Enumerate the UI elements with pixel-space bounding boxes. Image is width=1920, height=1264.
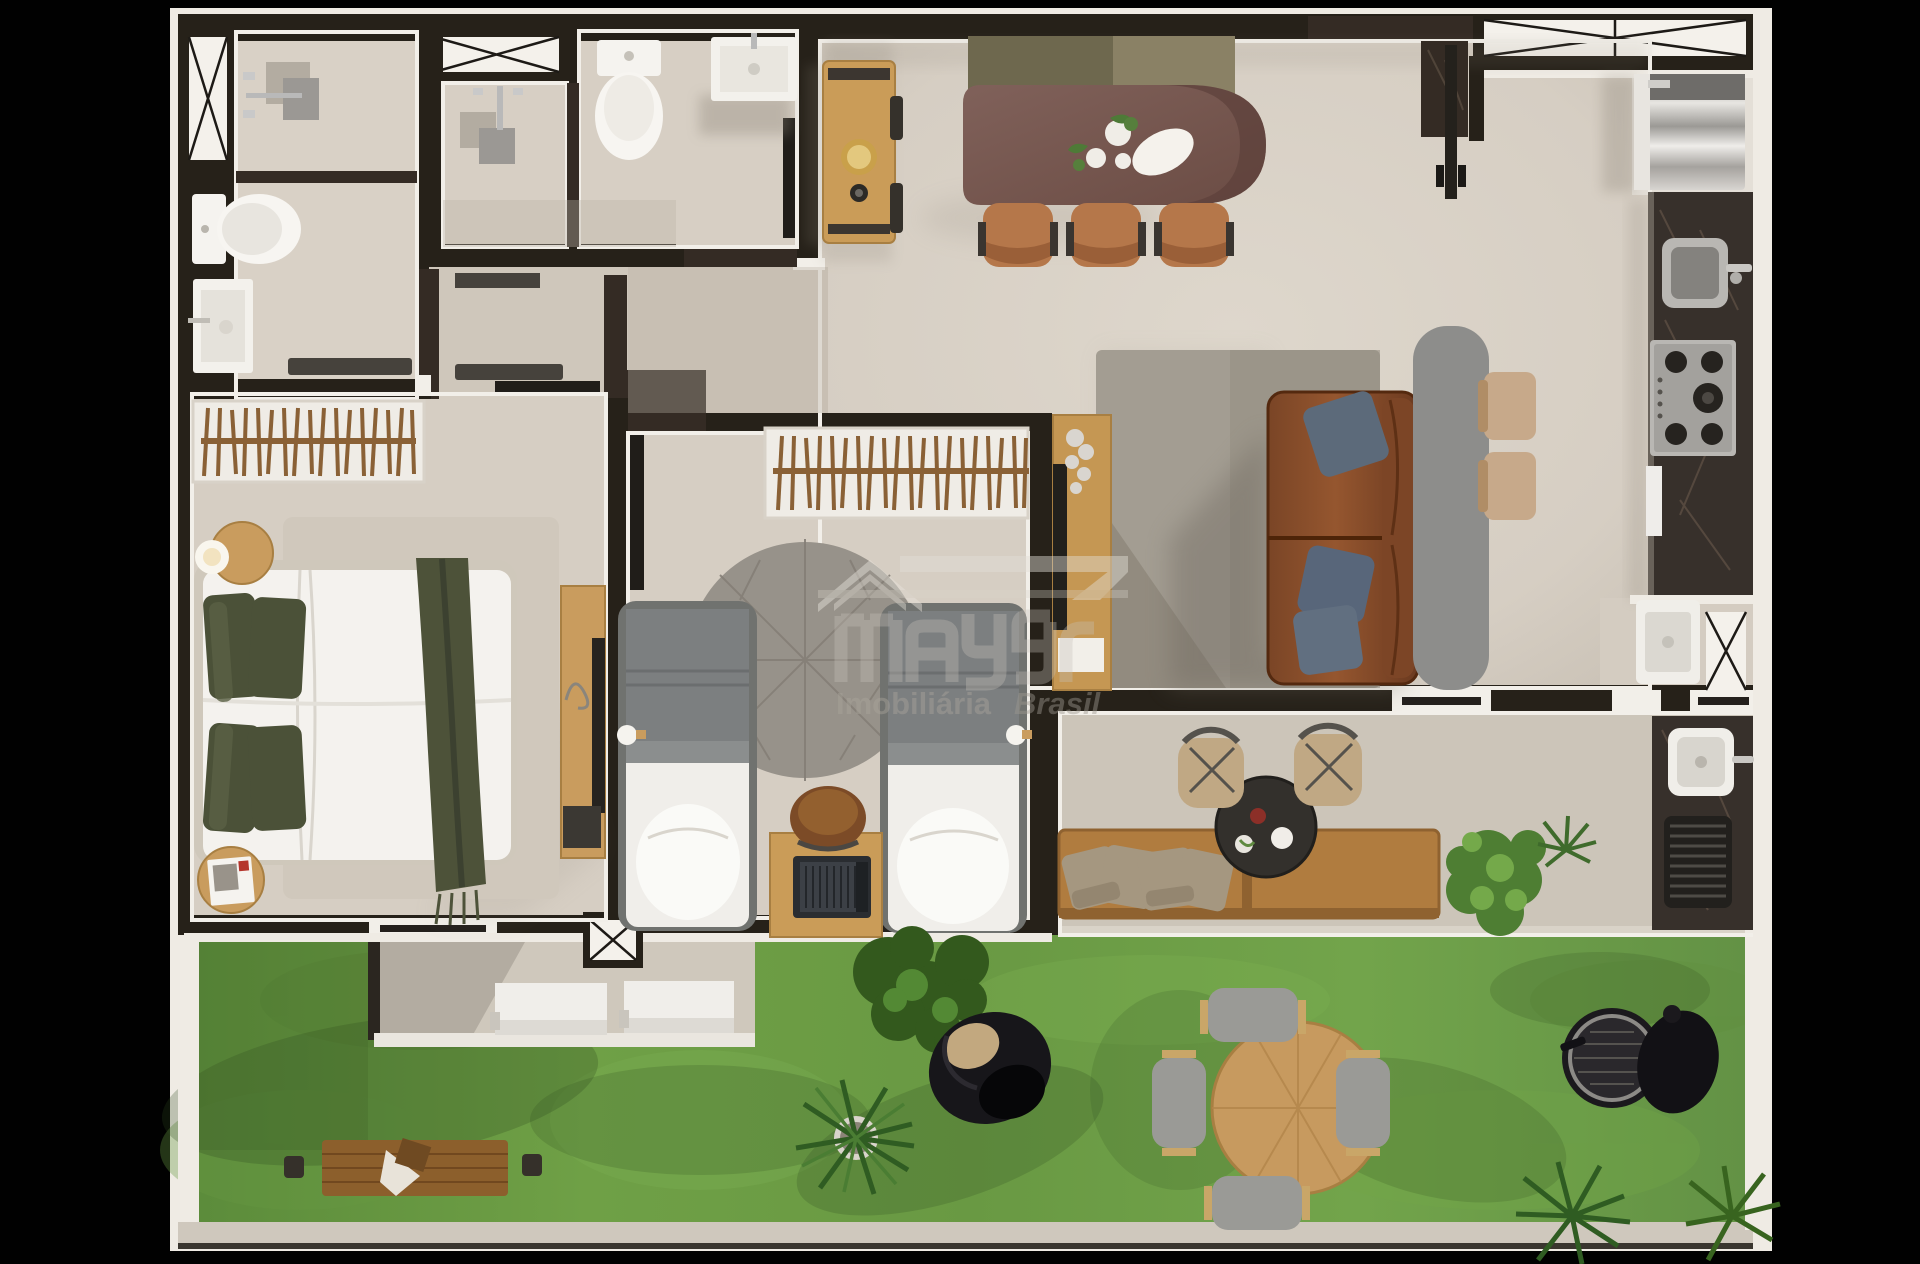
svg-text:Imobiliária: Imobiliária: [836, 686, 992, 721]
svg-text:Brasil: Brasil: [1014, 686, 1102, 721]
